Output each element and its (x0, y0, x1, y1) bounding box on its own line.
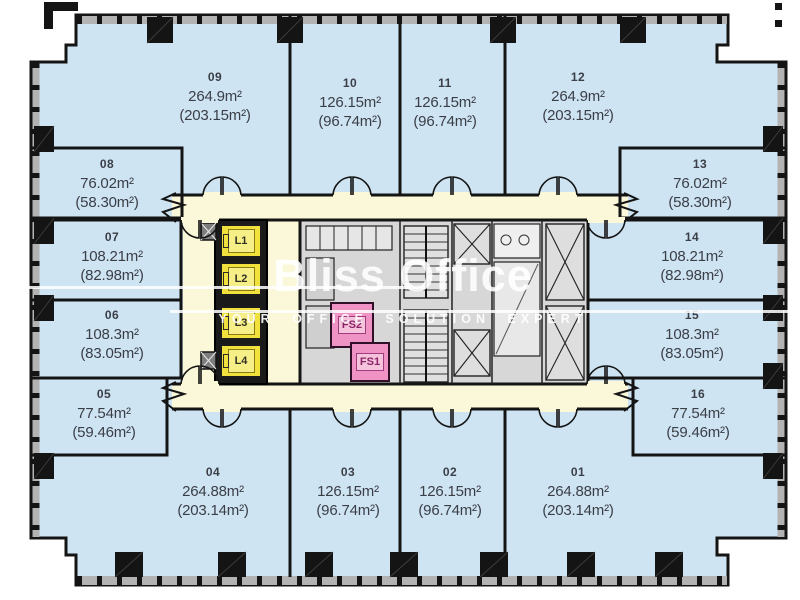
unit-label-16: 1677.54m²(59.46m²) (666, 385, 729, 442)
lift-L2: L2 (220, 262, 262, 296)
unit-area-net: (58.30m²) (75, 193, 138, 212)
unit-label-02: 02126.15m²(96.74m²) (418, 463, 481, 520)
unit-number: 16 (666, 385, 729, 404)
unit-number: 03 (316, 463, 379, 482)
unit-label-01: 01264.88m²(203.14m²) (542, 463, 613, 520)
unit-area-gross: 108.21m² (660, 247, 723, 266)
unit-area-gross: 126.15m² (418, 482, 481, 501)
unit-area-net: (96.74m²) (418, 501, 481, 520)
unit-area-net: (203.15m²) (179, 106, 250, 125)
unit-area-gross: 77.54m² (72, 404, 135, 423)
unit-area-gross: 126.15m² (318, 93, 381, 112)
lift-label: L2 (228, 267, 255, 291)
unit-area-net: (96.74m²) (316, 501, 379, 520)
unit-area-gross: 108.3m² (80, 325, 143, 344)
unit-label-08: 0876.02m²(58.30m²) (75, 155, 138, 212)
unit-number: 09 (179, 68, 250, 87)
unit-area-net: (83.05m²) (80, 344, 143, 363)
unit-area-net: (58.30m²) (668, 193, 731, 212)
unit-area-gross: 264.88m² (177, 482, 248, 501)
unit-number: 01 (542, 463, 613, 482)
unit-area-gross: 108.3m² (660, 325, 723, 344)
unit-area-net: (83.05m²) (660, 344, 723, 363)
lift-label: L1 (228, 229, 255, 253)
unit-number: 06 (80, 306, 143, 325)
unit-area-net: (59.46m²) (666, 423, 729, 442)
unit-number: 14 (660, 228, 723, 247)
unit-label-07: 07108.21m²(82.98m²) (80, 228, 143, 285)
fire-stair-label: FS1 (356, 353, 384, 371)
unit-label-12: 12264.9m²(203.15m²) (542, 68, 613, 125)
lift-L4: L4 (220, 344, 262, 378)
unit-area-net: (96.74m²) (318, 112, 381, 131)
unit-number: 05 (72, 385, 135, 404)
unit-number: 11 (413, 74, 476, 93)
unit-number: 02 (418, 463, 481, 482)
lift-label: L4 (228, 349, 255, 373)
unit-area-gross: 264.9m² (179, 87, 250, 106)
unit-label-10: 10126.15m²(96.74m²) (318, 74, 381, 131)
unit-area-net: (203.14m²) (542, 501, 613, 520)
floor-plan-linework (0, 0, 800, 600)
unit-area-gross: 264.9m² (542, 87, 613, 106)
unit-label-05: 0577.54m²(59.46m²) (72, 385, 135, 442)
unit-label-06: 06108.3m²(83.05m²) (80, 306, 143, 363)
unit-label-15: 15108.3m²(83.05m²) (660, 306, 723, 363)
unit-area-gross: 264.88m² (542, 482, 613, 501)
unit-area-gross: 126.15m² (413, 93, 476, 112)
unit-area-net: (82.98m²) (80, 266, 143, 285)
unit-area-net: (203.15m²) (542, 106, 613, 125)
unit-area-net: (59.46m²) (72, 423, 135, 442)
unit-label-11: 11126.15m²(96.74m²) (413, 74, 476, 131)
unit-number: 13 (668, 155, 731, 174)
unit-number: 04 (177, 463, 248, 482)
unit-area-gross: 108.21m² (80, 247, 143, 266)
unit-label-04: 04264.88m²(203.14m²) (177, 463, 248, 520)
unit-area-net: (82.98m²) (660, 266, 723, 285)
lift-L1: L1 (220, 224, 262, 258)
unit-area-gross: 77.54m² (666, 404, 729, 423)
unit-area-gross: 76.02m² (75, 174, 138, 193)
floor-plan: 09264.9m²(203.15m²)10126.15m²(96.74m²)11… (0, 0, 800, 600)
unit-label-09: 09264.9m²(203.15m²) (179, 68, 250, 125)
unit-area-gross: 126.15m² (316, 482, 379, 501)
unit-number: 15 (660, 306, 723, 325)
lift-label: L3 (228, 311, 255, 335)
unit-area-net: (96.74m²) (413, 112, 476, 131)
fire-stair-FS1: FS1 (350, 342, 390, 382)
unit-label-03: 03126.15m²(96.74m²) (316, 463, 379, 520)
unit-area-gross: 76.02m² (668, 174, 731, 193)
lift-L3: L3 (220, 306, 262, 340)
unit-label-13: 1376.02m²(58.30m²) (668, 155, 731, 212)
unit-number: 10 (318, 74, 381, 93)
unit-label-14: 14108.21m²(82.98m²) (660, 228, 723, 285)
unit-number: 12 (542, 68, 613, 87)
unit-area-net: (203.14m²) (177, 501, 248, 520)
unit-number: 07 (80, 228, 143, 247)
fire-stair-label: FS2 (338, 316, 366, 334)
unit-number: 08 (75, 155, 138, 174)
